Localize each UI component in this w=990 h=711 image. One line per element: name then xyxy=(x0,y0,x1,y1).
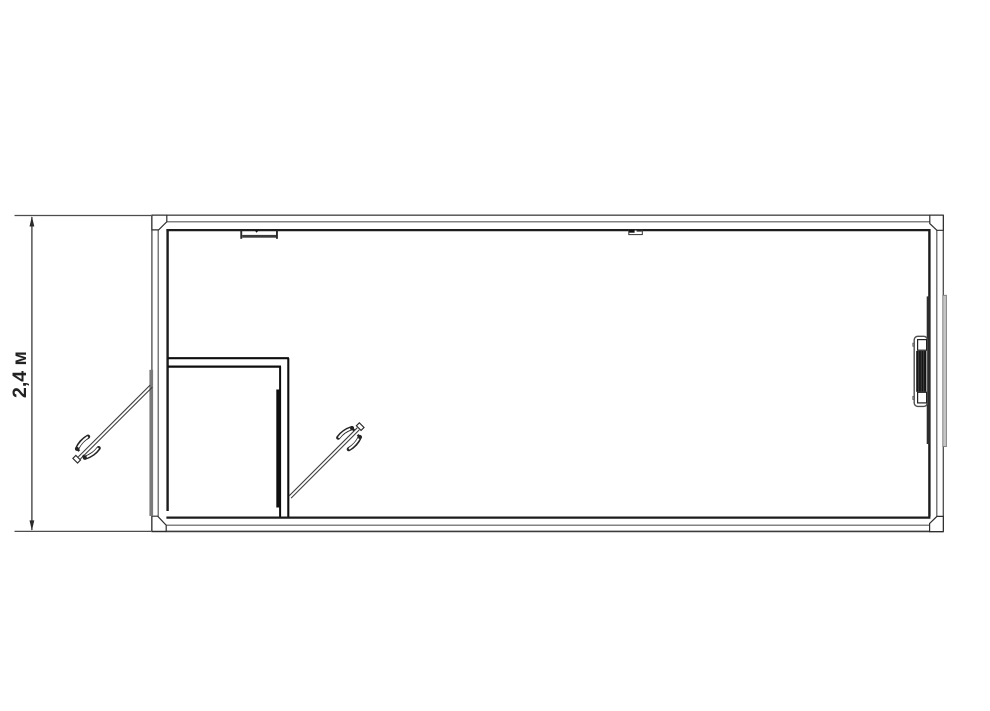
svg-text:2,4 м: 2,4 м xyxy=(9,351,31,398)
